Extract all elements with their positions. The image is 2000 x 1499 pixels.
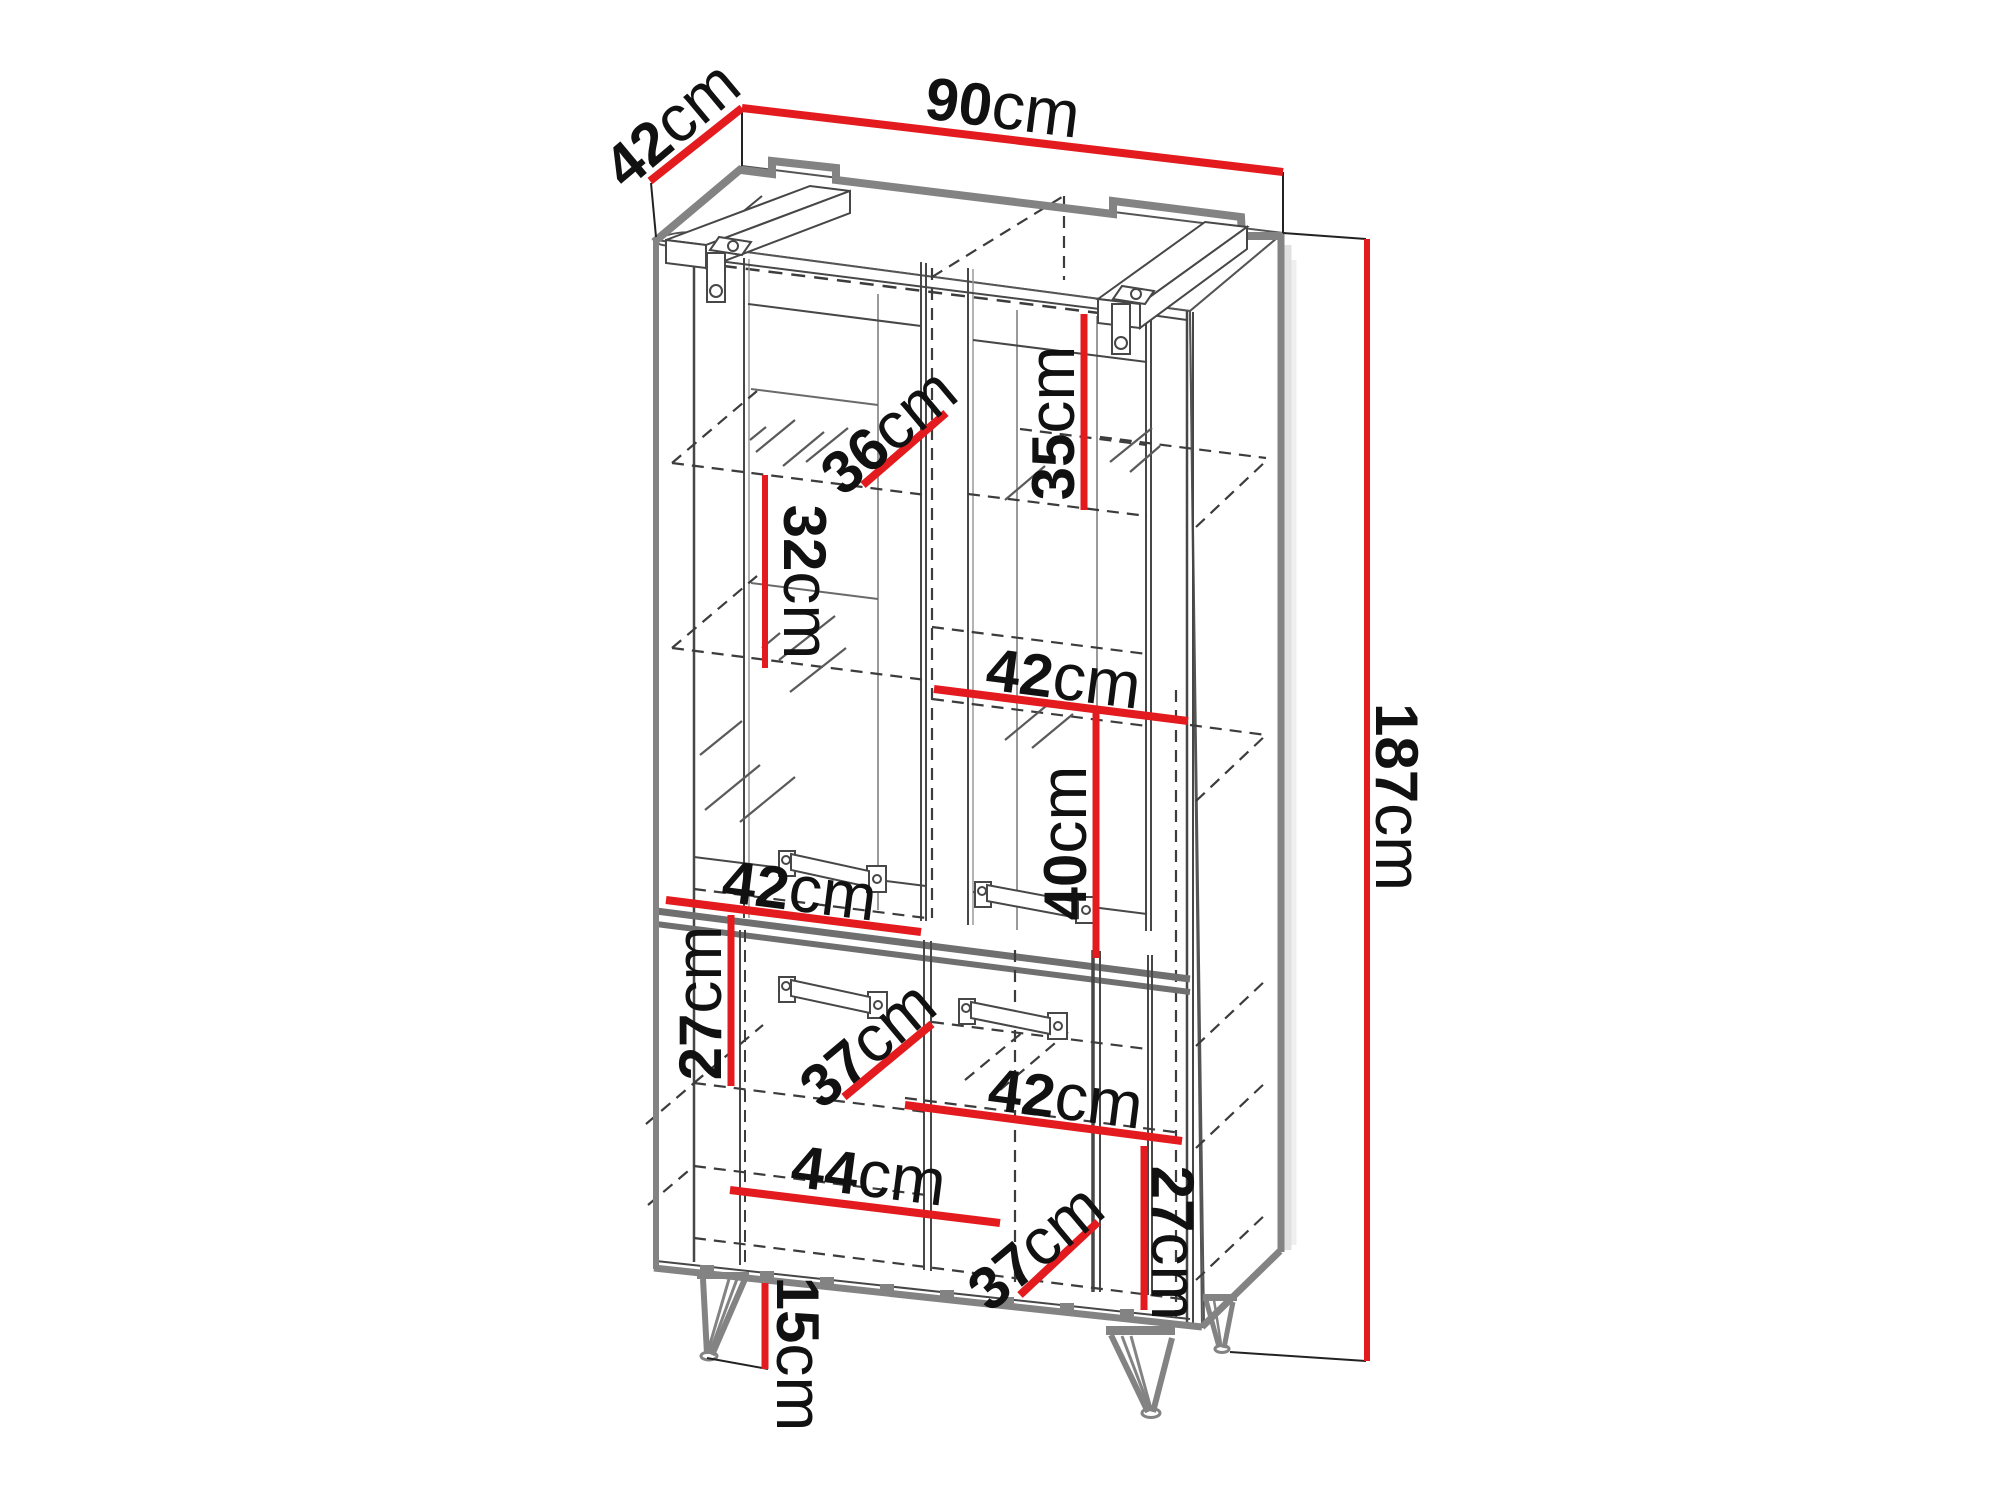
svg-text:27cm: 27cm	[1138, 1166, 1212, 1321]
svg-text:187cm: 187cm	[1362, 703, 1436, 891]
svg-text:35cm: 35cm	[1014, 346, 1088, 501]
svg-text:27cm: 27cm	[661, 926, 735, 1081]
svg-text:15cm: 15cm	[763, 1277, 837, 1432]
svg-text:32cm: 32cm	[770, 505, 844, 660]
svg-text:40cm: 40cm	[1026, 766, 1100, 921]
